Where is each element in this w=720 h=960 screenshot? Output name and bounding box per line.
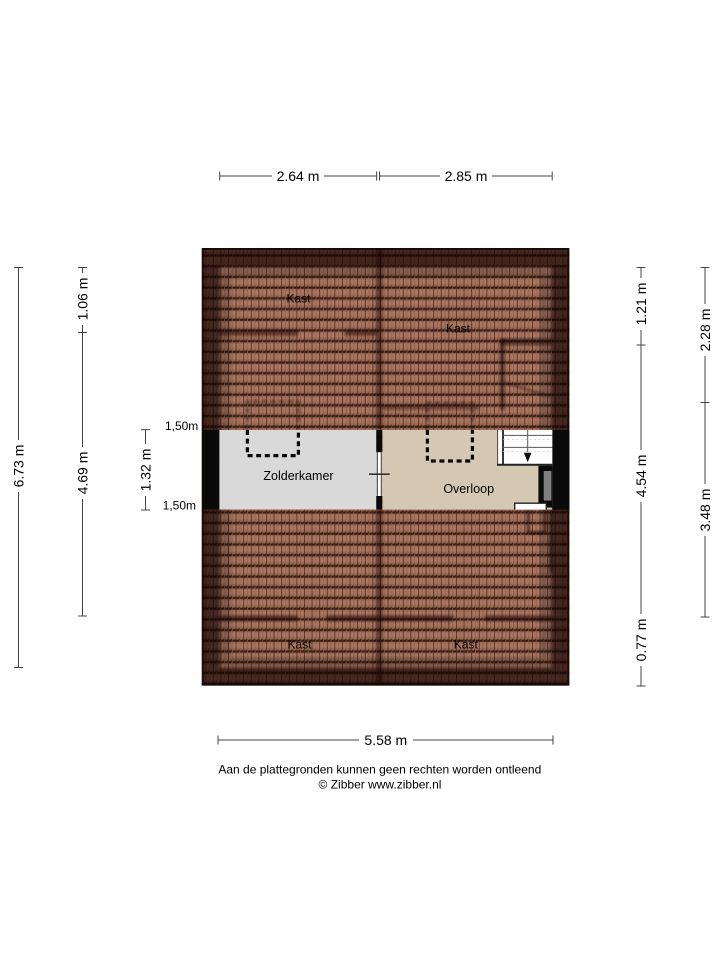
- svg-text:5.58 m: 5.58 m: [364, 732, 407, 748]
- svg-text:2.85 m: 2.85 m: [445, 168, 488, 184]
- svg-text:1.21 m: 1.21 m: [633, 283, 649, 326]
- svg-text:Kast: Kast: [454, 638, 479, 652]
- svg-text:1,50m: 1,50m: [165, 419, 198, 433]
- svg-text:3.48 m: 3.48 m: [697, 489, 713, 532]
- svg-text:2.64 m: 2.64 m: [277, 168, 320, 184]
- svg-text:1.32 m: 1.32 m: [138, 449, 154, 492]
- svg-text:Overloop: Overloop: [443, 482, 494, 496]
- svg-text:Kast: Kast: [287, 638, 312, 652]
- svg-text:Aan de plattegronden kunnen ge: Aan de plattegronden kunnen geen rechten…: [218, 763, 541, 777]
- svg-text:© Zibber www.zibber.nl: © Zibber www.zibber.nl: [319, 778, 442, 792]
- svg-text:0.77 m: 0.77 m: [633, 619, 649, 662]
- svg-text:4.69 m: 4.69 m: [75, 452, 91, 495]
- svg-text:Kast: Kast: [286, 292, 311, 306]
- svg-text:1,50m: 1,50m: [163, 499, 196, 513]
- svg-text:6.73 m: 6.73 m: [11, 445, 27, 488]
- svg-text:Zolderkamer: Zolderkamer: [263, 469, 333, 483]
- svg-text:2.28 m: 2.28 m: [697, 309, 713, 352]
- svg-text:Kast: Kast: [446, 322, 471, 336]
- svg-text:4.54 m: 4.54 m: [633, 455, 649, 498]
- svg-text:1.06 m: 1.06 m: [75, 278, 91, 321]
